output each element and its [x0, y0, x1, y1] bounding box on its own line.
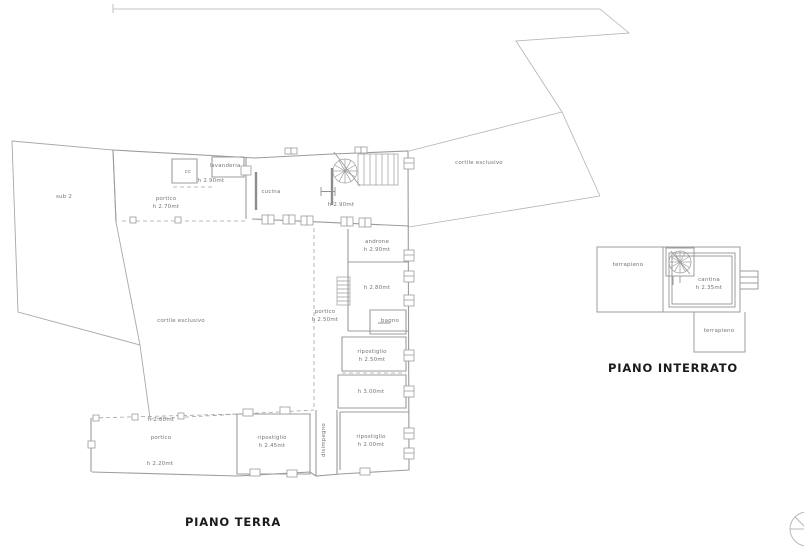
room-label-androne: androne [365, 239, 389, 245]
compass-icon [790, 512, 804, 546]
height-label-portico-scala: h 2.50mt [312, 317, 339, 323]
height-label-stanza2: h 3.00mt [358, 389, 385, 395]
portico-pillars [88, 217, 184, 448]
height-label-ripostiglio1: h 2.50mt [359, 357, 386, 363]
area-label-cortile: cortile esclusivo [157, 318, 205, 324]
property-boundary-lines [113, 4, 629, 227]
room-label-portico-scala: portico [315, 309, 336, 315]
room-label-cantina: cantina [698, 277, 720, 283]
window-symbols-court-wall [241, 147, 371, 477]
spiral-staircase-ground-icon [333, 152, 360, 186]
height-label-stanza: h 2.80mt [364, 285, 391, 291]
height-label-ripostiglio3: h 2.00mt [358, 442, 385, 448]
height-label-portico-sw: h 2.20mt [147, 461, 174, 467]
floor-plan-drawing: sub 2 cc lavanderia h 2.90mt portico h 2… [0, 0, 804, 549]
parcel-sub2-outline [12, 141, 150, 418]
room-label-sub2: sub 2 [56, 194, 72, 200]
building-walls [91, 150, 409, 476]
room-label-disimpegno: disimpegno [321, 423, 327, 457]
room-label-cucina: cucina [261, 189, 280, 195]
room-label-portico-north: portico [156, 196, 177, 202]
height-label-ripostiglio2: h 2.45mt [259, 443, 286, 449]
room-label-lavanderia: lavanderia [209, 163, 240, 169]
straight-stairs-icon [358, 154, 398, 185]
room-label-ripostiglio2: ripostiglio [257, 435, 286, 441]
area-label-terrapieno-left: terrapieno [613, 262, 644, 268]
room-label-bagno: bagno [381, 318, 399, 324]
room-label-portico-sw: portico [151, 435, 172, 441]
area-label-cortile-ne: cortile esclusivo [455, 160, 503, 166]
basement-title: PIANO INTERRATO [608, 361, 738, 375]
room-label-ripostiglio3: ripostiglio [356, 434, 385, 440]
height-label-portico-sw-top: h 2.80mt [148, 417, 175, 423]
room-label-cc: cc [185, 169, 191, 175]
room-label-ripostiglio1: ripostiglio [357, 349, 386, 355]
area-label-terrapieno-bottom: terrapieno [704, 328, 735, 334]
ground-floor-title: PIANO TERRA [185, 515, 281, 529]
height-label-portico-north: h 2.70mt [153, 204, 180, 210]
height-label-cantina: h 2.35mt [696, 285, 723, 291]
height-label-androne: h 2.90mt [364, 247, 391, 253]
plan-linework [0, 0, 804, 549]
height-label-lavanderia: h 2.90mt [198, 178, 225, 184]
height-label-soggiorno: h 2.90mt [328, 202, 355, 208]
